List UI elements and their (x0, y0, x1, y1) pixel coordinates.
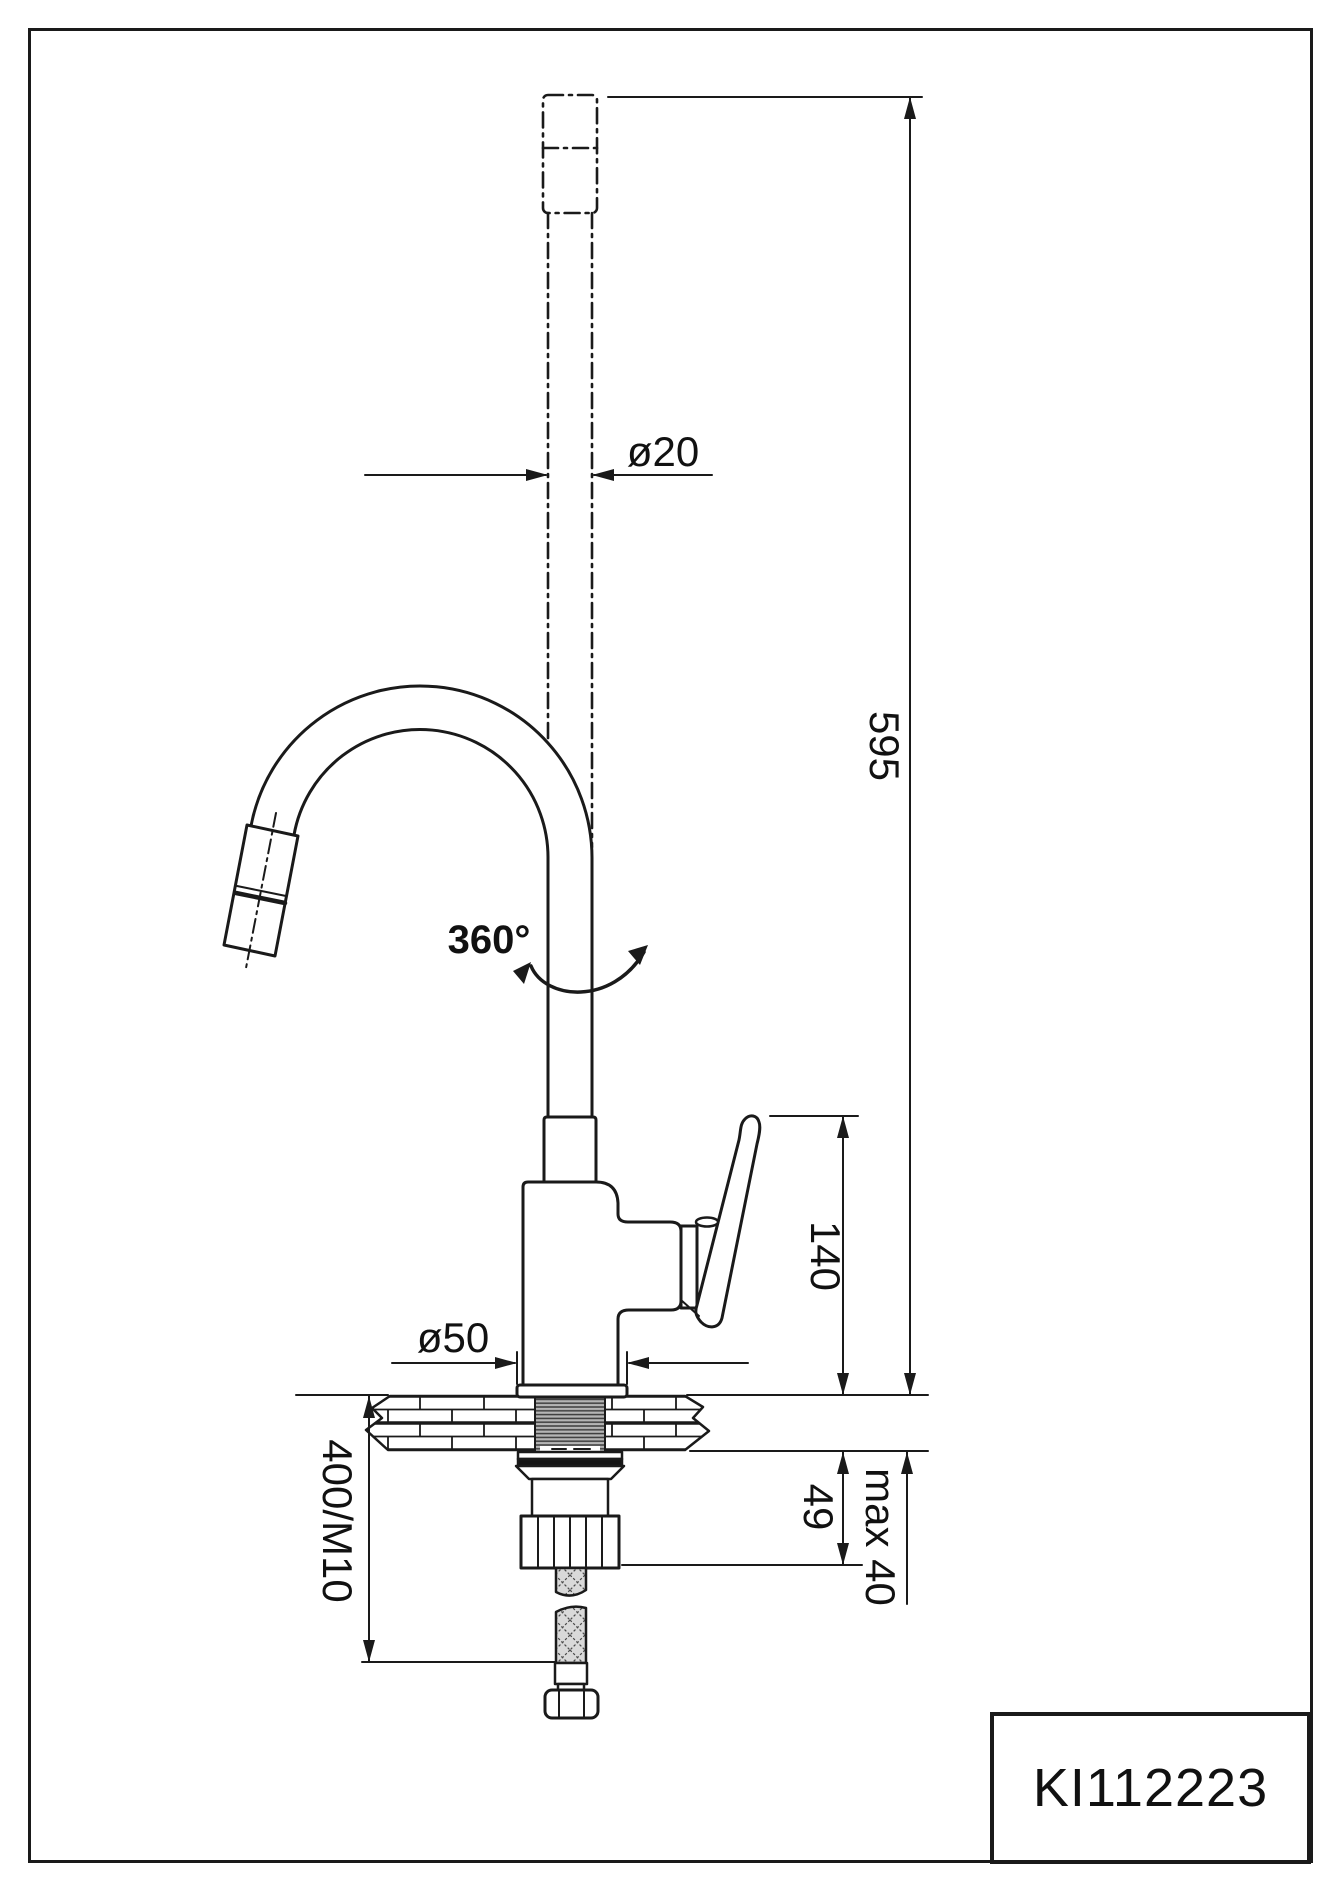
dim-label-max-thickness: max 40 (858, 1447, 902, 1627)
product-code: KI112223 (1033, 1757, 1268, 1819)
dim-label-hose-length: 400/M10 (315, 1401, 359, 1641)
dim-label-height-to-handle: 140 (803, 1186, 847, 1326)
dim-label-pipe-diameter: ø20 (608, 430, 718, 474)
mounting-hardware (516, 1452, 624, 1568)
dim-label-base-diameter: ø50 (398, 1316, 508, 1360)
handle-lever (681, 1116, 760, 1327)
phantom-pipe-top (543, 95, 597, 847)
dim-label-underdeck-height: 49 (796, 1447, 840, 1567)
pipe-column (544, 859, 596, 1182)
title-block: KI112223 (990, 1712, 1311, 1864)
spout-tip (224, 813, 298, 968)
supply-hose (545, 1568, 598, 1718)
dim-label-total-height: 595 (862, 676, 906, 816)
faucet-line-art (0, 0, 1344, 1900)
faucet-body (517, 1182, 681, 1397)
spout-gooseneck (251, 686, 592, 859)
swivel-angle-label: 360° (434, 918, 544, 962)
threaded-shank (535, 1396, 605, 1452)
technical-drawing-canvas: ø20 595 360° 140 ø50 49 max 40 400/M10 K… (0, 0, 1344, 1900)
